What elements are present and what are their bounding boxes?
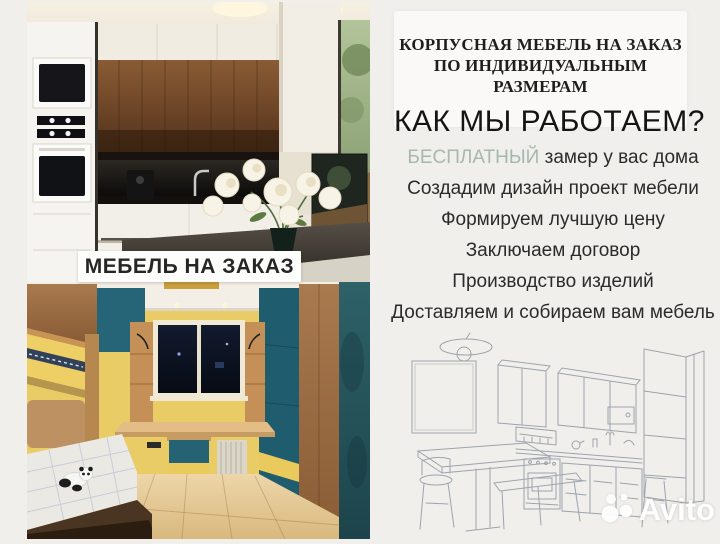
step-highlight: БЕСПЛАТНЫЙ bbox=[407, 147, 539, 168]
avito-watermark: Avito bbox=[600, 491, 715, 525]
step-item-5: Производство изделий bbox=[390, 272, 716, 292]
kids-room-photo-art bbox=[27, 282, 370, 539]
header-line-2: ПО ИНДИВИДУАЛЬНЫМ РАЗМЕРАМ bbox=[394, 55, 687, 97]
step-item-1: БЕСПЛАТНЫЙ замер у вас дома bbox=[390, 148, 716, 168]
banner-label: МЕБЕЛЬ НА ЗАКАЗ bbox=[85, 255, 294, 279]
header-card: КОРПУСНАЯ МЕБЕЛЬ НА ЗАКАЗ ПО ИНДИВИДУАЛЬ… bbox=[394, 11, 687, 127]
step-item-4: Заключаем договор bbox=[390, 241, 716, 261]
step-item-6: Доставляем и собираем вам мебель bbox=[390, 303, 716, 323]
kitchen-photo bbox=[27, 2, 370, 282]
step-item-3: Формируем лучшую цену bbox=[390, 210, 716, 230]
header-line-1: КОРПУСНАЯ МЕБЕЛЬ НА ЗАКАЗ bbox=[394, 34, 687, 55]
furniture-ad-image: МЕБЕЛЬ НА ЗАКАЗ bbox=[0, 0, 720, 539]
banner-furniture-to-order: МЕБЕЛЬ НА ЗАКАЗ bbox=[78, 251, 301, 282]
avito-brand-text: Avito bbox=[639, 494, 715, 525]
section-heading: КАК МЫ РАБОТАЕМ? bbox=[394, 105, 687, 139]
kids-room-photo bbox=[27, 282, 370, 539]
avito-logo-icon bbox=[600, 491, 636, 525]
step-item-2: Создадим дизайн проект мебели bbox=[390, 179, 716, 199]
kitchen-photo-art bbox=[27, 2, 370, 282]
steps-list: БЕСПЛАТНЫЙ замер у вас дома Создадим диз… bbox=[390, 148, 716, 334]
step-text: замер у вас дома bbox=[545, 147, 699, 168]
